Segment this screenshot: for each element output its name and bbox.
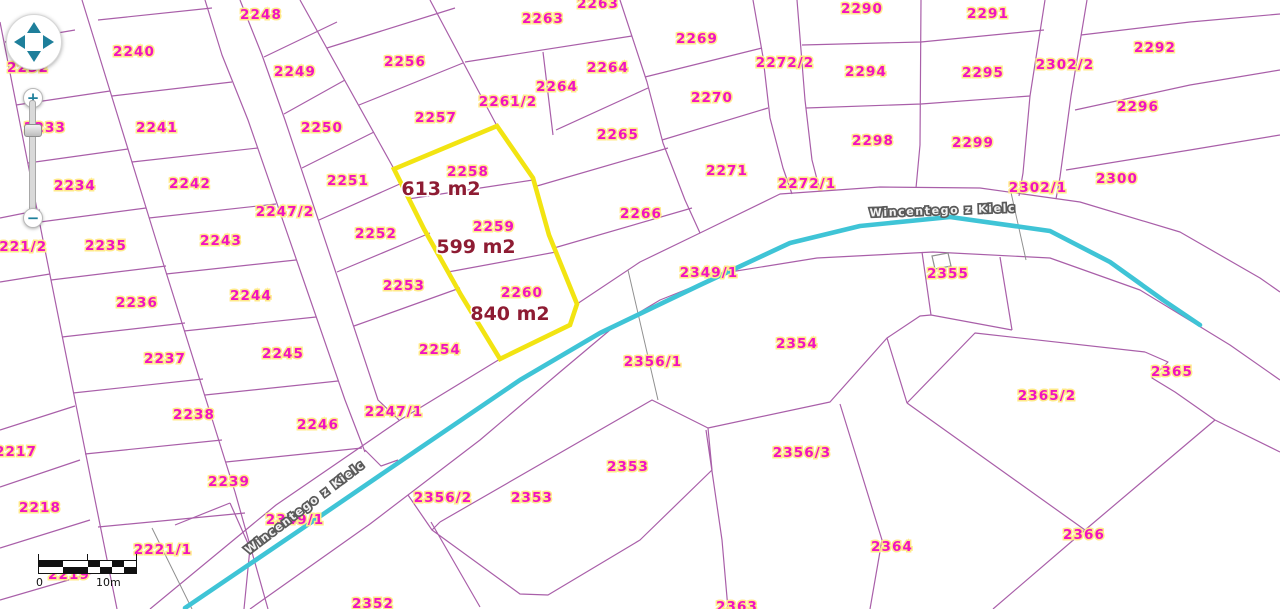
zoom-slider-handle[interactable] xyxy=(24,124,42,137)
parcel-label-2355: 2355 xyxy=(927,266,969,282)
parcel-label-2234: 2234 xyxy=(54,178,96,194)
parcel-label-2248: 2248 xyxy=(240,7,282,23)
parcel-label-2272/1: 2272/1 xyxy=(778,176,837,192)
parcel-label-2271: 2271 xyxy=(706,163,748,179)
parcel-label-2238: 2238 xyxy=(173,407,215,423)
parcel-label-2218: 2218 xyxy=(19,500,61,516)
parcel-label-2244: 2244 xyxy=(230,288,272,304)
parcel-label-2241: 2241 xyxy=(136,120,178,136)
parcel-label-2256: 2256 xyxy=(384,54,426,70)
parcel-label-2221/2: 2221/2 xyxy=(0,239,47,255)
scale-end-label: 10m xyxy=(96,576,121,589)
parcel-label-2243: 2243 xyxy=(200,233,242,249)
zoom-out-button[interactable]: − xyxy=(23,208,43,228)
parcel-label-2259: 2259 xyxy=(473,219,515,235)
parcel-label-2291: 2291 xyxy=(967,6,1009,22)
parcel-label-2365/2: 2365/2 xyxy=(1018,388,1077,404)
street-name-label-1: Wincentego z Kielc xyxy=(242,458,367,557)
map-pan-control[interactable] xyxy=(6,14,62,70)
street-name-label-0: Wincentego z Kielc xyxy=(869,201,1016,219)
parcel-label-2235: 2235 xyxy=(85,238,127,254)
parcel-label-2364: 2364 xyxy=(871,539,913,555)
parcel-label-2356/3: 2356/3 xyxy=(773,445,832,461)
parcel-label-2246: 2246 xyxy=(297,417,339,433)
parcel-label-2349/1: 2349/1 xyxy=(680,265,739,281)
parcel-boundaries xyxy=(0,0,1280,609)
parcel-label-2294: 2294 xyxy=(845,64,887,80)
parcel-label-2250: 2250 xyxy=(301,120,343,136)
map-canvas[interactable]: 2232223322342221/22235223622372238223922… xyxy=(0,0,1280,609)
area-label-2259: 599 m2 xyxy=(436,236,515,258)
scale-start-label: 0 xyxy=(36,576,43,589)
parcel-label-2263: 2263 xyxy=(577,0,619,12)
scale-bar: 0 10m xyxy=(38,554,148,592)
parcel-label-2292: 2292 xyxy=(1134,40,1176,56)
parcel-label-2302/1: 2302/1 xyxy=(1009,180,1068,196)
parcel-label-2245: 2245 xyxy=(262,346,304,362)
parcel-label-2240: 2240 xyxy=(113,44,155,60)
parcel-label-2251: 2251 xyxy=(327,173,369,189)
parcel-label-2239: 2239 xyxy=(208,474,250,490)
parcel-label-2249: 2249 xyxy=(274,64,316,80)
parcel-label-2247/2: 2247/2 xyxy=(256,204,315,220)
parcel-label-2266: 2266 xyxy=(620,206,662,222)
parcel-label-2237: 2237 xyxy=(144,351,186,367)
parcel-label-2354: 2354 xyxy=(776,336,818,352)
parcel-label-2299: 2299 xyxy=(952,135,994,151)
map-viewport[interactable]: 2232223322342221/22235223622372238223922… xyxy=(0,0,1280,609)
parcel-label-2253: 2253 xyxy=(383,278,425,294)
parcel-label-2264: 2264 xyxy=(536,79,578,95)
parcel-label-2264: 2264 xyxy=(587,60,629,76)
parcel-label-2263: 2263 xyxy=(522,11,564,27)
zoom-slider-track[interactable] xyxy=(29,100,36,216)
parcel-label-2265: 2265 xyxy=(597,127,639,143)
parcel-label-2302/2: 2302/2 xyxy=(1036,57,1095,73)
parcel-label-2252: 2252 xyxy=(355,226,397,242)
pan-down-arrow-icon[interactable] xyxy=(27,51,41,62)
parcel-label-layer: 2232223322342221/22235223622372238223922… xyxy=(0,0,1193,609)
parcel-label-2257: 2257 xyxy=(415,110,457,126)
parcel-label-2217: 2217 xyxy=(0,444,37,460)
parcel-label-2365: 2365 xyxy=(1151,364,1193,380)
area-label-2258: 613 m2 xyxy=(401,178,480,200)
street-label-layer: Wincentego z KielcWincentego z Kielc xyxy=(242,201,1016,556)
parcel-label-2242: 2242 xyxy=(169,176,211,192)
parcel-label-2353: 2353 xyxy=(511,490,553,506)
parcel-label-2366: 2366 xyxy=(1063,527,1105,543)
pan-left-arrow-icon[interactable] xyxy=(14,35,25,49)
parcel-label-2290: 2290 xyxy=(841,1,883,17)
area-label-2260: 840 m2 xyxy=(470,303,549,325)
parcel-label-2295: 2295 xyxy=(962,65,1004,81)
parcel-label-2270: 2270 xyxy=(691,90,733,106)
parcel-label-2352: 2352 xyxy=(352,596,394,609)
parcel-label-2254: 2254 xyxy=(419,342,461,358)
parcel-label-2356/2: 2356/2 xyxy=(414,490,473,506)
pan-right-arrow-icon[interactable] xyxy=(43,35,54,49)
parcel-label-2300: 2300 xyxy=(1096,171,1138,187)
parcel-label-2261/2: 2261/2 xyxy=(479,94,538,110)
parcel-label-2353: 2353 xyxy=(607,459,649,475)
parcel-label-2260: 2260 xyxy=(501,285,543,301)
parcel-label-2363: 2363 xyxy=(716,599,758,609)
scale-bar-graphic xyxy=(38,560,137,574)
area-label-layer: 613 m2599 m2840 m2 xyxy=(401,178,549,325)
parcel-label-2269: 2269 xyxy=(676,31,718,47)
parcel-label-2356/1: 2356/1 xyxy=(624,354,683,370)
parcel-label-2236: 2236 xyxy=(116,295,158,311)
parcel-label-2272/2: 2272/2 xyxy=(756,55,815,71)
parcel-label-2298: 2298 xyxy=(852,133,894,149)
pan-up-arrow-icon[interactable] xyxy=(27,22,41,33)
parcel-label-2296: 2296 xyxy=(1117,99,1159,115)
parcel-label-2247/1: 2247/1 xyxy=(365,404,424,420)
